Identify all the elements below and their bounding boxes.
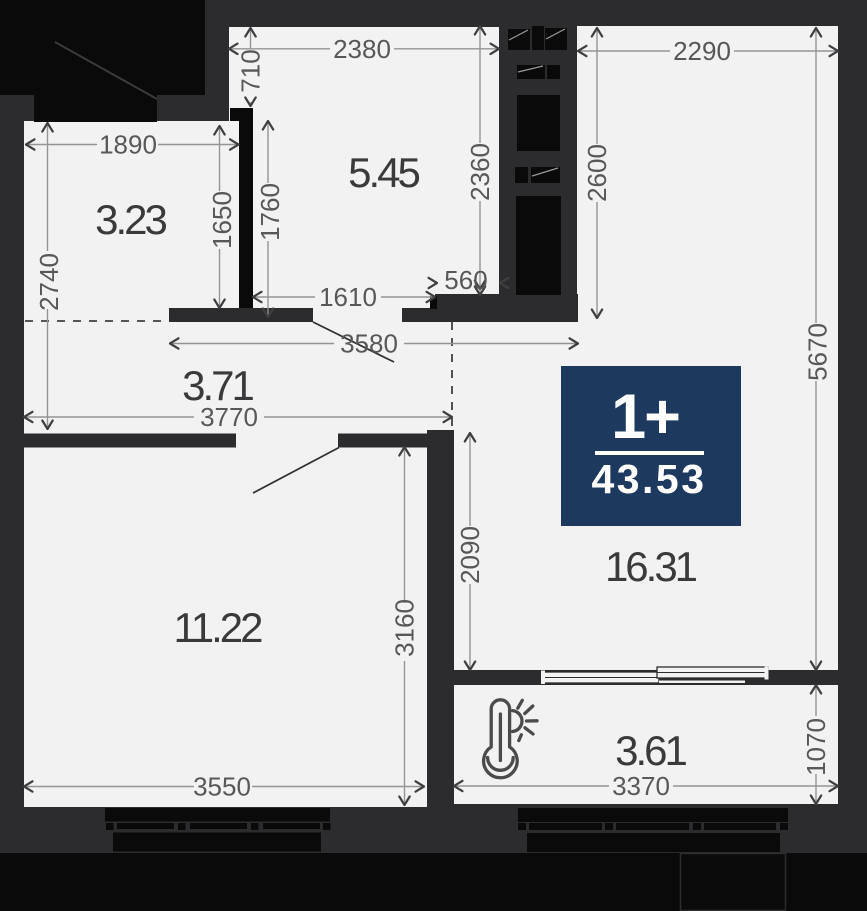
svg-text:43.53: 43.53 <box>591 456 706 502</box>
svg-text:560: 560 <box>444 265 487 295</box>
svg-text:3370: 3370 <box>612 771 670 801</box>
svg-text:1650: 1650 <box>207 191 237 249</box>
svg-text:2090: 2090 <box>455 526 485 584</box>
svg-text:3550: 3550 <box>193 772 251 802</box>
svg-text:1610: 1610 <box>319 282 377 312</box>
svg-text:1+: 1+ <box>611 382 679 452</box>
svg-text:710: 710 <box>236 49 266 92</box>
svg-text:1070: 1070 <box>801 718 831 776</box>
svg-text:2360: 2360 <box>465 143 495 201</box>
svg-text:3770: 3770 <box>200 402 258 432</box>
svg-text:2290: 2290 <box>673 36 731 66</box>
svg-text:11.22: 11.22 <box>174 604 263 651</box>
svg-text:1890: 1890 <box>99 130 157 160</box>
svg-text:2740: 2740 <box>34 253 64 311</box>
svg-text:5.45: 5.45 <box>348 149 419 196</box>
svg-text:3.61: 3.61 <box>615 727 686 774</box>
svg-text:3160: 3160 <box>390 599 420 657</box>
svg-text:2380: 2380 <box>333 34 391 64</box>
svg-text:1760: 1760 <box>255 183 285 241</box>
svg-text:3.23: 3.23 <box>95 196 166 243</box>
svg-text:5670: 5670 <box>803 323 833 381</box>
svg-text:16.31: 16.31 <box>605 543 697 590</box>
svg-text:2600: 2600 <box>582 144 612 202</box>
svg-text:3580: 3580 <box>340 329 398 359</box>
